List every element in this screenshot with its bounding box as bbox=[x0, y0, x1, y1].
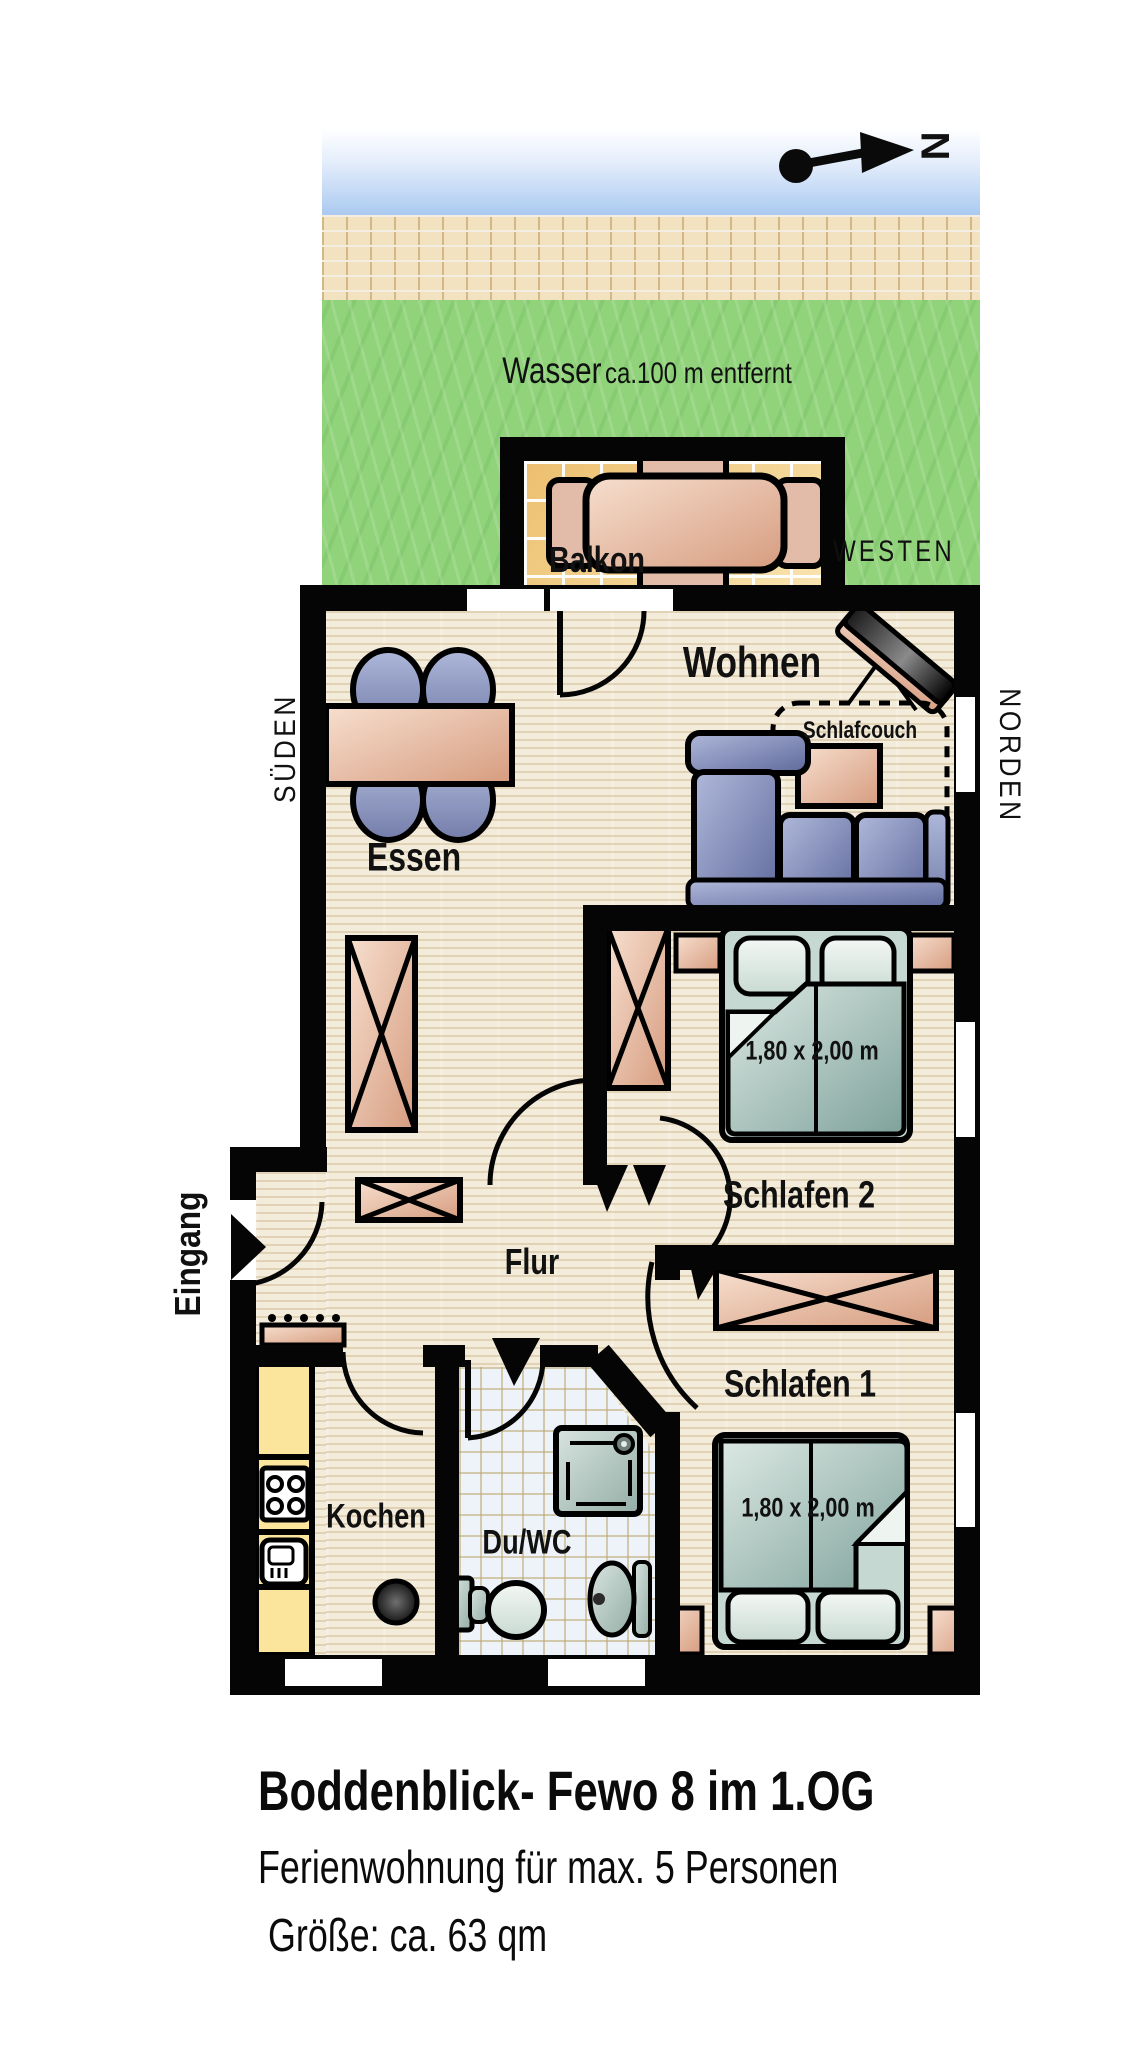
tv-icon bbox=[835, 603, 957, 714]
room-label-kitchen: Kochen bbox=[326, 1498, 426, 1537]
balcony-table-icon bbox=[549, 440, 823, 606]
room-label-dining: Essen bbox=[367, 836, 461, 881]
bed1-icon bbox=[660, 1435, 974, 1654]
caption-size: Größe: ca. 63 qm bbox=[268, 1908, 547, 1962]
compass-north-label: N bbox=[912, 132, 957, 161]
orientation-south-label: SÜDEN bbox=[269, 693, 303, 803]
bed1-size-label: 1,80 x 2,00 m bbox=[741, 1493, 874, 1524]
compass-icon bbox=[779, 132, 914, 183]
room-label-hall: Flur bbox=[505, 1241, 559, 1283]
stool-icon bbox=[375, 1581, 417, 1623]
bed2-size-label: 1,80 x 2,00 m bbox=[745, 1036, 878, 1067]
caption-title: Boddenblick- Fewo 8 im 1.OG bbox=[258, 1758, 874, 1823]
room-label-bedroom2: Schlafen 2 bbox=[723, 1175, 875, 1218]
stove-icon bbox=[262, 1468, 308, 1520]
caption-capacity: Ferienwohnung für max. 5 Personen bbox=[258, 1840, 838, 1894]
floorplan-graphics bbox=[0, 0, 1134, 2048]
washbasin-icon bbox=[590, 1562, 650, 1636]
orientation-west-label: WESTEN bbox=[833, 535, 955, 569]
sink-icon bbox=[262, 1540, 306, 1584]
sleepcouch-label: Schlafcouch bbox=[803, 717, 917, 745]
entrance-label: Eingang bbox=[167, 1192, 209, 1317]
bed2-icon bbox=[676, 928, 954, 1140]
water-word: Wasser bbox=[502, 350, 601, 391]
toilet-icon bbox=[452, 1578, 544, 1637]
floorplan-scene: Wasser ca.100 m entfernt N WESTEN NORDEN… bbox=[0, 0, 1134, 2048]
dining-set-icon bbox=[326, 650, 512, 840]
room-label-bath: Du/WC bbox=[482, 1524, 571, 1563]
room-label-bedroom1: Schlafen 1 bbox=[724, 1364, 876, 1407]
water-distance-text: ca.100 m entfernt bbox=[605, 357, 792, 390]
orientation-north-label: NORDEN bbox=[992, 688, 1026, 824]
shower-icon bbox=[556, 1428, 640, 1514]
room-label-balcony: Balkon bbox=[549, 539, 645, 581]
room-label-living: Wohnen bbox=[683, 638, 821, 688]
water-distance-label: Wasser ca.100 m entfernt bbox=[502, 350, 792, 392]
